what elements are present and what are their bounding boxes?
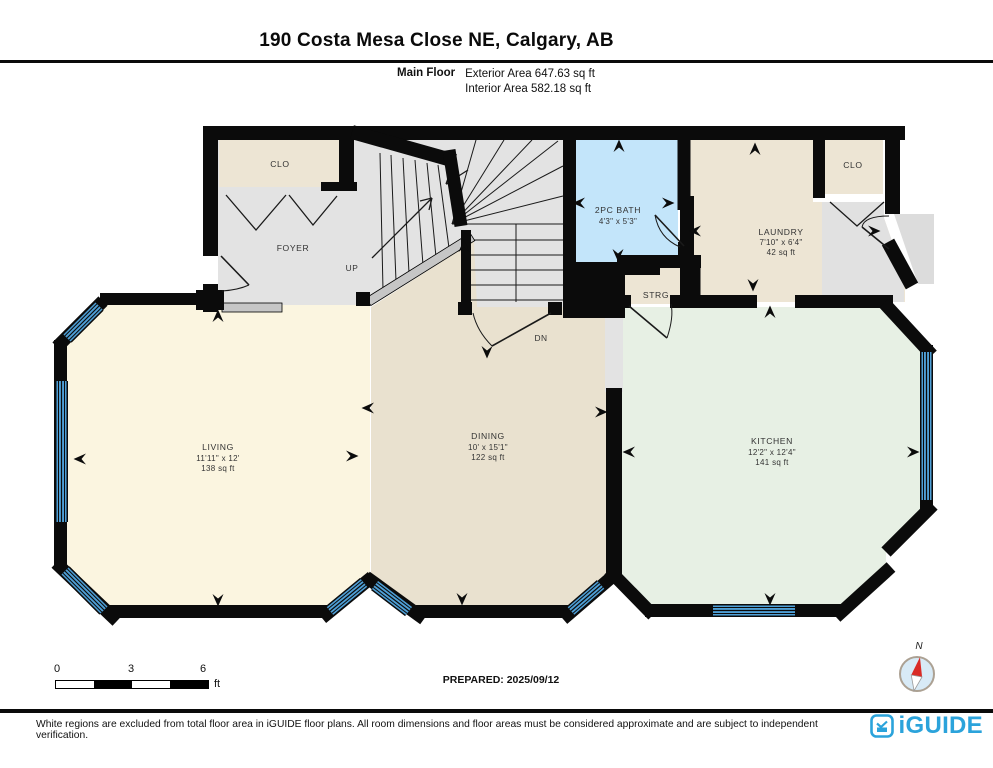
window-kitchen-east (924, 352, 930, 500)
svg-text:KITCHEN: KITCHEN (751, 436, 793, 446)
scale-ticks: 0 3 6 (55, 663, 255, 676)
scale-segment (94, 681, 132, 688)
foyer-threshold (222, 303, 282, 312)
footer-disclaimer: White regions are excluded from total fl… (36, 719, 826, 741)
floor-label: Main Floor (397, 67, 455, 97)
footer-divider (0, 709, 993, 713)
foyer-label: FOYER (277, 243, 310, 253)
interior-area: Interior Area 582.18 sq ft (465, 82, 595, 97)
svg-text:12'2" x 12'4": 12'2" x 12'4" (748, 448, 796, 457)
dining-label: DINING 10' x 15'1" 122 sq ft (468, 431, 508, 462)
laundry-closet-label: CLO (843, 160, 862, 170)
area-summary: Exterior Area 647.63 sq ft Interior Area… (465, 67, 595, 97)
hallway-floor (605, 308, 623, 392)
living-label: LIVING 11'11" x 12' 138 sq ft (196, 442, 240, 473)
title-divider (0, 60, 993, 63)
scale-segment (56, 681, 94, 688)
svg-text:LAUNDRY: LAUNDRY (758, 227, 803, 237)
svg-text:2PC BATH: 2PC BATH (595, 205, 641, 215)
bath-floor (576, 140, 678, 262)
svg-text:42 sq ft: 42 sq ft (767, 248, 796, 257)
scale-tick-6: 6 (200, 663, 206, 675)
compass: N (888, 638, 946, 698)
exterior-area: Exterior Area 647.63 sq ft (465, 67, 595, 82)
scale-segment (170, 681, 208, 688)
iguide-logo-icon (869, 713, 895, 739)
svg-text:11'11" x 12': 11'11" x 12' (196, 454, 240, 463)
prepared-date: PREPARED: 2025/09/12 (396, 674, 606, 686)
scale-segment (132, 681, 170, 688)
scale-tick-3: 3 (128, 663, 134, 675)
compass-north-label: N (915, 641, 923, 652)
svg-text:7'10" x 6'4": 7'10" x 6'4" (759, 238, 802, 247)
scale-bar: 0 3 6 ft (55, 663, 255, 690)
stairs-up-label: UP (346, 263, 359, 273)
storage-label: STRG (643, 290, 669, 300)
rail-end-post (356, 292, 370, 306)
floorplan-page: CLO FOYER UP DN 2PC BATH 4'3" x 5'3" LAU… (0, 0, 993, 768)
floorplan-drawing: CLO FOYER UP DN 2PC BATH 4'3" x 5'3" LAU… (0, 0, 993, 768)
scale-unit: ft (214, 678, 220, 690)
scale-bar-segments (55, 680, 209, 689)
iguide-logo: iGUIDE (869, 712, 983, 740)
stairs-down-label: DN (534, 333, 547, 343)
svg-text:4'3" x 5'3": 4'3" x 5'3" (599, 217, 637, 226)
page-title: 190 Costa Mesa Close NE, Calgary, AB (0, 30, 933, 52)
room-fills (58, 140, 934, 616)
svg-text:122 sq ft: 122 sq ft (471, 453, 505, 462)
svg-text:LIVING: LIVING (202, 442, 234, 452)
iguide-logo-text: iGUIDE (899, 712, 983, 740)
scale-tick-0: 0 (54, 663, 60, 675)
svg-text:138 sq ft: 138 sq ft (201, 464, 235, 473)
floor-summary: Main Floor Exterior Area 647.63 sq ft In… (397, 67, 595, 97)
svg-text:10' x 15'1": 10' x 15'1" (468, 443, 508, 452)
window-kitchen-south (713, 608, 795, 614)
foyer-closet-label: CLO (270, 159, 289, 169)
window-living-west (59, 381, 65, 522)
svg-text:141 sq ft: 141 sq ft (755, 458, 789, 467)
svg-text:DINING: DINING (471, 431, 505, 441)
